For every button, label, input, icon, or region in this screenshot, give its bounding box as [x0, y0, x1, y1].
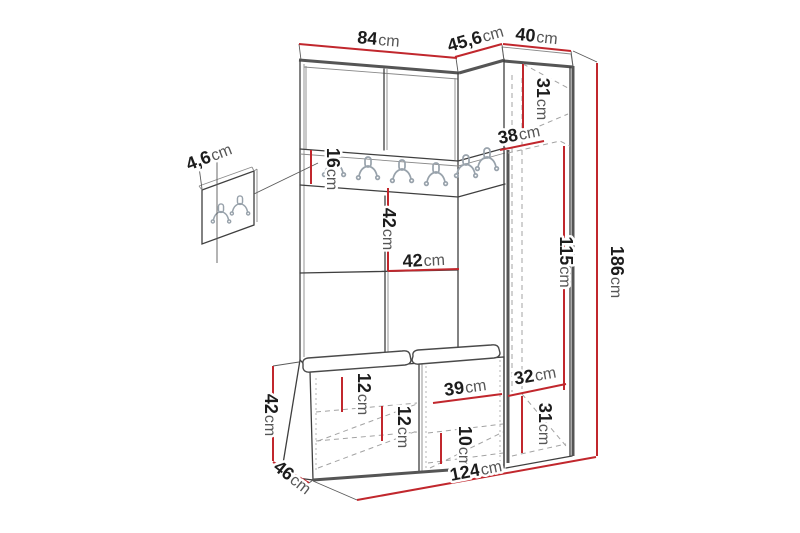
coat-hook-icon [211, 204, 230, 223]
dim-label-mid-width: 42cm [402, 249, 445, 271]
coat-hook-icon [425, 163, 448, 185]
dim-label-cabinet-top-section: 31cm [533, 78, 553, 120]
coat-hook-icon [391, 160, 414, 182]
dim-label-total-height: 186cm [607, 246, 627, 298]
dim-label-bench-shelf-gap-left: 12cm [394, 406, 414, 448]
dim-label-cabinet-bottom-section: 31cm [535, 403, 555, 445]
dim-label-bench-top-gap: 12cm [354, 373, 374, 415]
coat-hook-icon [230, 196, 249, 215]
dim-label-bench-depth: 46cm [270, 456, 316, 498]
wall-panel-outline [299, 60, 505, 360]
dim-label-mid-height: 42cm [379, 208, 399, 250]
dim-label-cabinet-inner-height: 115cm [556, 236, 576, 287]
coat-hook-icon [357, 157, 380, 179]
bench-cushion-right [412, 345, 500, 364]
dimension-labels: 84cm 45,6cm 40cm 4,6cm 16cm 31cm 38cm 42… [183, 21, 627, 498]
dim-label-rail-height: 16cm [323, 148, 343, 190]
bench-cushion-left [303, 351, 411, 372]
dim-label-top-width-right: 40cm [515, 24, 559, 48]
detail-callout-line [254, 163, 318, 194]
dim-label-panel-thickness: 4,6cm [183, 139, 234, 175]
screenshot-canvas: 84cm 45,6cm 40cm 4,6cm 16cm 31cm 38cm 42… [0, 0, 800, 533]
dim-label-bench-right-depth: 32cm [512, 362, 557, 389]
dim-label-bench-height: 42cm [261, 394, 281, 436]
hallway-furniture-dimension-diagram: 84cm 45,6cm 40cm 4,6cm 16cm 31cm 38cm 42… [0, 0, 800, 533]
dim-label-top-width-left: 84cm [357, 27, 401, 51]
